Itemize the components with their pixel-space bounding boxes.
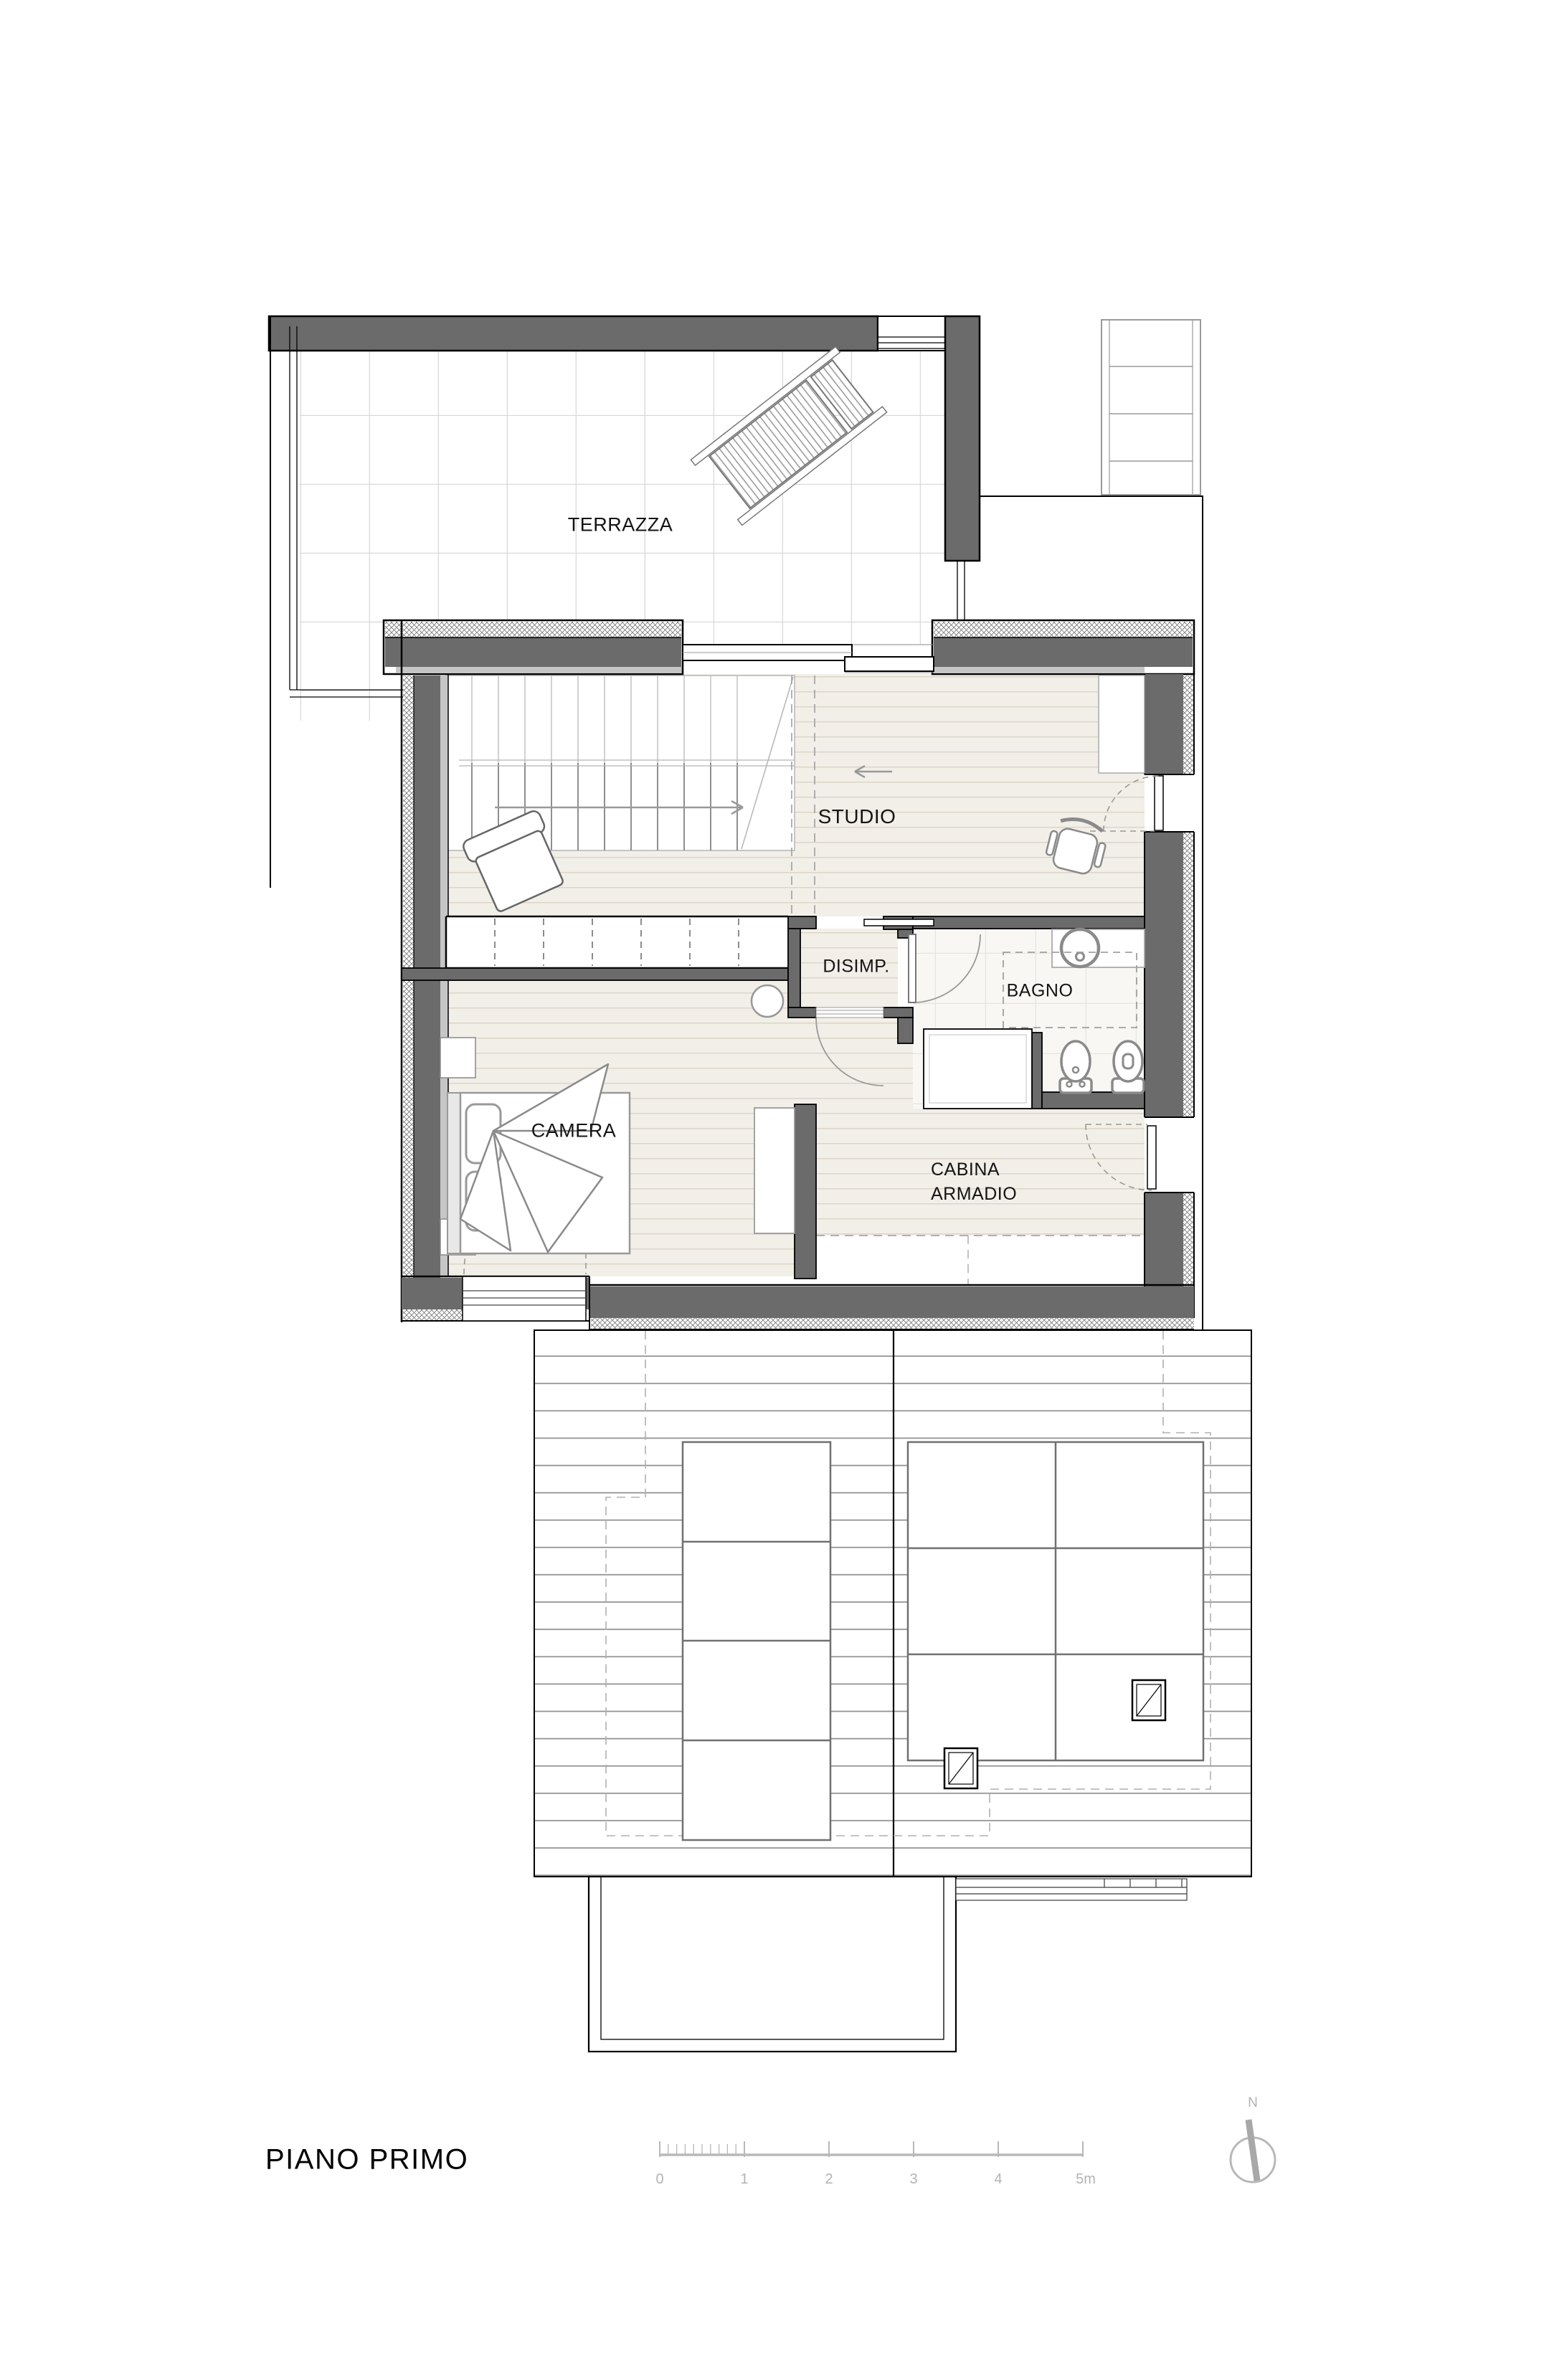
north-label: N: [1248, 2095, 1258, 2111]
floor-plan-page: TERRAZZA STUDIO DISIMP. BAGNO CAMERA CAB…: [0, 0, 1554, 2380]
scale-label-5m: 5m: [1076, 2171, 1096, 2188]
room-label-terrazza: TERRAZZA: [568, 514, 673, 536]
camera-french-door: [463, 1276, 586, 1321]
scale-bar: [660, 2141, 1083, 2157]
room-label-bagno: BAGNO: [1007, 981, 1074, 1002]
room-label-camera: CAMERA: [531, 1120, 617, 1142]
scale-label-0: 0: [655, 2171, 663, 2188]
room-label-studio: STUDIO: [818, 805, 896, 828]
wardrobe-row: [446, 916, 788, 968]
wall-niche: [440, 1038, 475, 1078]
roof-window-icon: [1132, 1680, 1165, 1720]
patio-below: [589, 1877, 956, 2052]
bathroom-vanity: [1052, 929, 1145, 967]
cabina-label-line1: CABINA: [931, 1157, 1017, 1182]
entry-cabinet: [1099, 675, 1145, 773]
room-label-disimpegno: DISIMP.: [823, 957, 889, 977]
stool: [752, 985, 783, 1017]
terrazza-sliding-door: [683, 645, 934, 673]
page-title: PIANO PRIMO: [265, 2144, 468, 2176]
south-wall-left: [402, 1276, 589, 1321]
north-wall-right: [932, 620, 1194, 674]
bed: [447, 1064, 630, 1253]
scale-label-2: 2: [825, 2171, 833, 2188]
disimpegno-pocket-door: [864, 919, 934, 926]
north-wall-left: [384, 620, 683, 674]
east-wall: [1145, 622, 1194, 1318]
room-label-cabina-armadio: CABINA ARMADIO: [931, 1157, 1017, 1206]
toilet: [1112, 1041, 1144, 1093]
outdoor-shelf-unit: [1101, 320, 1200, 495]
scale-label-3: 3: [909, 2171, 917, 2188]
floor-plan-drawing: [0, 0, 1554, 2380]
bidet: [1060, 1041, 1091, 1093]
cabina-closet-strip: [816, 1236, 1145, 1285]
camera-dresser: [754, 1108, 795, 1233]
shower-tray: [924, 1029, 1032, 1109]
scale-label-4: 4: [994, 2171, 1002, 2188]
solar-panels-left: [683, 1442, 830, 1840]
parapet-window: [878, 316, 945, 351]
cabina-label-line2: ARMADIO: [931, 1182, 1017, 1206]
roof-plan: [534, 1330, 1251, 2052]
north-arrow-icon: [1231, 2120, 1275, 2182]
roof-window-icon: [944, 1748, 977, 1788]
south-wall-right: [589, 1276, 1194, 1329]
railing-below: [956, 1879, 1187, 1900]
scale-label-1: 1: [740, 2171, 748, 2188]
